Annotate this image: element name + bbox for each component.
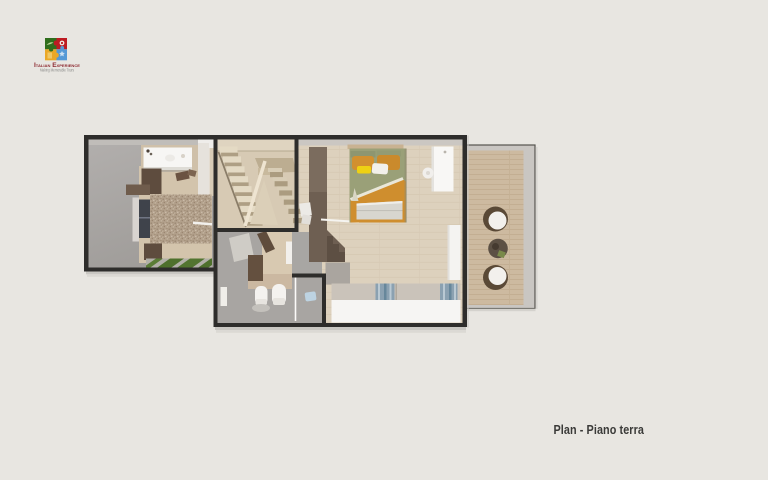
svg-text:Making Memorable Tours: Making Memorable Tours xyxy=(40,68,74,73)
svg-text:Plan - Piano terra: Plan - Piano terra xyxy=(554,423,645,437)
